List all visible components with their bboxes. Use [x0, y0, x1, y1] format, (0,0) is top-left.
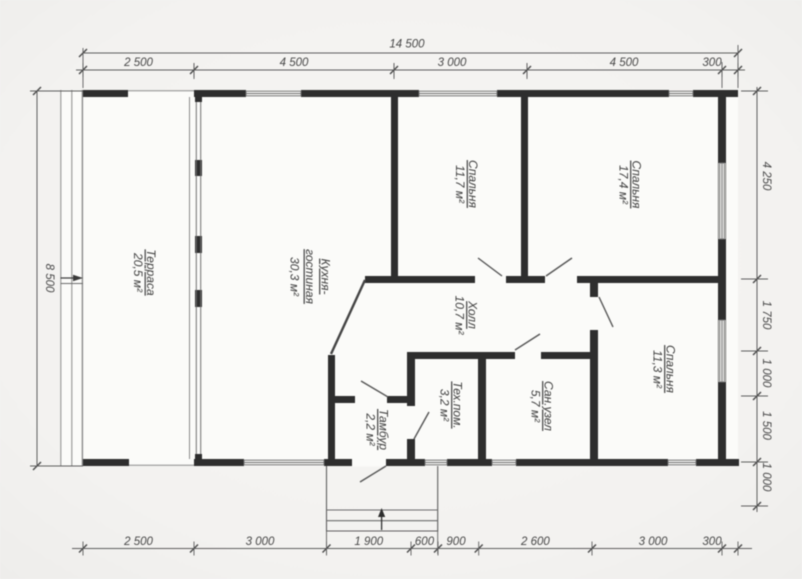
svg-text:20,5 м²: 20,5 м²	[131, 252, 145, 293]
svg-text:5,7 м²: 5,7 м²	[528, 390, 542, 423]
svg-text:900: 900	[446, 536, 466, 548]
svg-text:8 500: 8 500	[43, 264, 55, 293]
svg-text:2 500: 2 500	[123, 57, 153, 69]
svg-text:1 500: 1 500	[760, 411, 772, 440]
svg-text:1 750: 1 750	[760, 301, 772, 330]
svg-text:600: 600	[415, 536, 435, 548]
svg-text:2,2 м²: 2,2 м²	[363, 412, 377, 446]
svg-text:4 500: 4 500	[610, 57, 639, 69]
svg-text:300: 300	[702, 536, 722, 548]
svg-text:1 000: 1 000	[760, 359, 772, 388]
svg-text:4 250: 4 250	[760, 162, 772, 191]
svg-text:17,4 м²: 17,4 м²	[616, 165, 630, 205]
svg-text:3 000: 3 000	[639, 536, 668, 548]
svg-text:Спальня: Спальня	[466, 160, 480, 208]
svg-text:3 000: 3 000	[246, 536, 275, 548]
svg-text:3 000: 3 000	[438, 57, 467, 69]
svg-text:11,7 м²: 11,7 м²	[453, 165, 467, 204]
svg-text:Тех.пом.: Тех.пом.	[450, 381, 464, 428]
svg-text:Сан.узел: Сан.узел	[541, 381, 555, 431]
svg-text:Холл: Холл	[465, 300, 479, 329]
svg-text:14 500: 14 500	[389, 39, 425, 51]
svg-text:гостиная: гостиная	[303, 249, 317, 304]
svg-text:3,2 м²: 3,2 м²	[437, 389, 451, 422]
svg-text:Кухня-: Кухня-	[318, 259, 332, 295]
svg-text:2 500: 2 500	[123, 536, 153, 548]
svg-text:2 600: 2 600	[520, 536, 550, 548]
svg-text:Терраса: Терраса	[144, 249, 158, 296]
svg-text:1 000: 1 000	[760, 463, 772, 492]
svg-text:Спальня: Спальня	[629, 161, 643, 209]
svg-text:Спальня: Спальня	[663, 345, 677, 393]
svg-text:30,3 м²: 30,3 м²	[287, 257, 301, 297]
svg-text:4 500: 4 500	[280, 57, 309, 69]
svg-text:10,7 м²: 10,7 м²	[452, 296, 466, 336]
svg-text:1 900: 1 900	[354, 536, 383, 548]
svg-text:Тамбур: Тамбур	[376, 409, 390, 450]
svg-text:300: 300	[702, 57, 722, 69]
svg-text:11,3 м²: 11,3 м²	[650, 350, 664, 389]
